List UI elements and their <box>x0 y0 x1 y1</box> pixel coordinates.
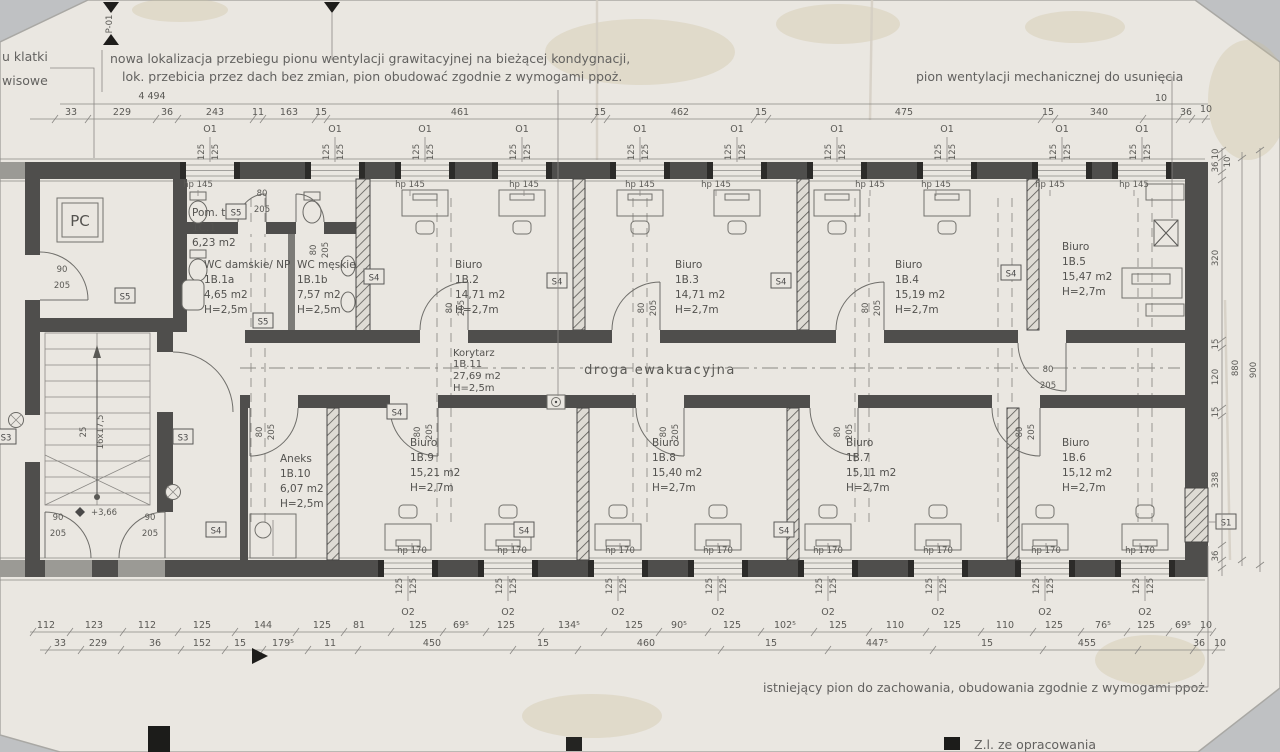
svg-text:11: 11 <box>252 107 264 118</box>
svg-text:69⁵: 69⁵ <box>453 620 469 631</box>
svg-text:81: 81 <box>353 620 365 631</box>
svg-text:320: 320 <box>1211 250 1221 266</box>
svg-text:36: 36 <box>1193 638 1205 649</box>
svg-text:10: 10 <box>1214 638 1226 649</box>
overall-dim: 4 494 <box>138 91 165 102</box>
room-label-korytarz: Korytarz 1B.11 27,69 m2 H=2,5m <box>453 348 501 394</box>
svg-text:102⁵: 102⁵ <box>774 620 796 631</box>
svg-text:10: 10 <box>1200 620 1212 631</box>
svg-text:H=2,7m: H=2,7m <box>410 482 454 494</box>
svg-text:H=2,5m: H=2,5m <box>204 304 248 316</box>
svg-text:15: 15 <box>537 638 549 649</box>
svg-text:Biuro: Biuro <box>895 259 922 271</box>
floor-plan-svg: O1 125 125 O2 125 125 hp 145 hp 170 S4 <box>0 0 1280 752</box>
svg-text:179⁵: 179⁵ <box>272 638 294 649</box>
svg-text:10: 10 <box>1211 149 1221 160</box>
svg-text:Biuro: Biuro <box>1062 241 1089 253</box>
svg-text:WC damskie/ NP: WC damskie/ NP <box>204 259 290 271</box>
svg-text:Korytarz: Korytarz <box>453 348 495 359</box>
svg-text:36: 36 <box>149 638 161 649</box>
evacuation-route-label: droga ewakuacyjna <box>584 363 736 378</box>
svg-text:15,40 m2: 15,40 m2 <box>652 467 702 479</box>
level-value: +3,66 <box>91 508 117 518</box>
svg-text:900: 900 <box>1249 362 1259 378</box>
svg-text:4,65 m2: 4,65 m2 <box>204 289 248 301</box>
svg-text:1B.1b: 1B.1b <box>297 274 328 286</box>
right-note: pion wentylacji mechanicznej do usunięci… <box>916 69 1183 84</box>
svg-text:H=2,7m: H=2,7m <box>846 482 890 494</box>
svg-text:125: 125 <box>409 620 427 631</box>
svg-text:1B.1a: 1B.1a <box>204 274 234 286</box>
svg-text:36: 36 <box>1211 162 1221 173</box>
svg-text:125: 125 <box>1137 620 1155 631</box>
svg-text:134⁵: 134⁵ <box>558 620 580 631</box>
existing-vent-shaft <box>1185 488 1208 542</box>
svg-text:229: 229 <box>113 107 131 118</box>
corner-note-line1: u klatki <box>2 49 48 64</box>
svg-text:33: 33 <box>54 638 66 649</box>
svg-text:125: 125 <box>625 620 643 631</box>
sink-icon <box>182 280 204 310</box>
svg-text:90⁵: 90⁵ <box>671 620 687 631</box>
svg-text:125: 125 <box>829 620 847 631</box>
svg-text:15: 15 <box>1211 407 1221 418</box>
svg-text:338: 338 <box>1211 472 1221 488</box>
svg-text:120: 120 <box>1211 369 1221 385</box>
svg-text:6,07 m2: 6,07 m2 <box>280 483 324 495</box>
svg-text:10: 10 <box>1200 104 1212 115</box>
svg-text:110: 110 <box>996 620 1014 631</box>
svg-text:1C.1: 1C.1 <box>192 222 216 234</box>
svg-text:6,23 m2: 6,23 m2 <box>192 237 236 249</box>
svg-text:125: 125 <box>497 620 515 631</box>
svg-text:144: 144 <box>254 620 272 631</box>
svg-text:15: 15 <box>234 638 246 649</box>
svg-text:1B.10: 1B.10 <box>280 468 311 480</box>
urinal-icon <box>341 292 355 312</box>
svg-text:Aneks: Aneks <box>280 453 312 465</box>
svg-text:33: 33 <box>65 107 77 118</box>
svg-text:152: 152 <box>193 638 211 649</box>
mech-vent-to-remove-symbol <box>1154 220 1178 246</box>
svg-text:461: 461 <box>451 107 469 118</box>
svg-text:P-01: P-01 <box>105 15 115 34</box>
svg-text:36: 36 <box>1180 107 1192 118</box>
svg-text:15: 15 <box>755 107 767 118</box>
svg-text:H=2,5m: H=2,5m <box>297 304 341 316</box>
legend-black-square <box>566 737 582 751</box>
svg-text:1B.4: 1B.4 <box>895 274 919 286</box>
svg-text:15: 15 <box>315 107 327 118</box>
svg-text:1B.9: 1B.9 <box>410 452 434 464</box>
svg-text:14,71 m2: 14,71 m2 <box>675 289 725 301</box>
svg-text:125: 125 <box>1045 620 1063 631</box>
svg-text:125: 125 <box>193 620 211 631</box>
svg-text:76⁵: 76⁵ <box>1095 620 1111 631</box>
svg-text:H=2,5m: H=2,5m <box>453 383 495 394</box>
pc-label: PC <box>70 212 90 230</box>
svg-text:H=2,7m: H=2,7m <box>895 304 939 316</box>
svg-text:125: 125 <box>723 620 741 631</box>
svg-text:14,71 m2: 14,71 m2 <box>455 289 505 301</box>
svg-text:11: 11 <box>324 638 336 649</box>
svg-text:15,47 m2: 15,47 m2 <box>1062 271 1112 283</box>
svg-text:1B.5: 1B.5 <box>1062 256 1086 268</box>
svg-text:H=2,5m: H=2,5m <box>280 498 324 510</box>
svg-text:27,69 m2: 27,69 m2 <box>453 371 501 382</box>
svg-text:110: 110 <box>886 620 904 631</box>
svg-text:10: 10 <box>1223 157 1233 168</box>
svg-text:1B.8: 1B.8 <box>652 452 676 464</box>
svg-text:H=2,7m: H=2,7m <box>675 304 719 316</box>
svg-text:462: 462 <box>671 107 689 118</box>
svg-text:Biuro: Biuro <box>455 259 482 271</box>
top-note-line2: lok. przebicia przez dach bez zmian, pio… <box>122 69 622 84</box>
footer-caption: Z.l. ze opracowania <box>974 737 1096 752</box>
corner-note-line2: wisowe <box>2 73 48 88</box>
svg-text:H=2,7m: H=2,7m <box>652 482 696 494</box>
svg-text:450: 450 <box>423 638 441 649</box>
svg-text:15: 15 <box>981 638 993 649</box>
svg-text:WC męskie: WC męskie <box>297 259 356 271</box>
svg-text:10: 10 <box>1155 93 1167 104</box>
vent-grav-symbol <box>166 485 181 500</box>
svg-text:15,19 m2: 15,19 m2 <box>895 289 945 301</box>
svg-text:15,11 m2: 15,11 m2 <box>846 467 896 479</box>
svg-text:460: 460 <box>637 638 655 649</box>
svg-text:163: 163 <box>280 107 298 118</box>
svg-text:15: 15 <box>1211 339 1221 350</box>
svg-text:880: 880 <box>1231 360 1241 376</box>
svg-text:36: 36 <box>161 107 173 118</box>
svg-text:Biuro: Biuro <box>675 259 702 271</box>
svg-text:123: 123 <box>85 620 103 631</box>
svg-text:H=2,7m: H=2,7m <box>1062 286 1106 298</box>
top-note-line1: nowa lokalizacja przebiegu pionu wentyla… <box>110 51 630 66</box>
svg-text:1B.11: 1B.11 <box>453 359 482 370</box>
legend-black-box <box>148 726 170 752</box>
svg-text:455: 455 <box>1078 638 1096 649</box>
vent-grav-symbol <box>9 413 24 428</box>
svg-text:125: 125 <box>943 620 961 631</box>
svg-text:36: 36 <box>1211 551 1221 562</box>
svg-text:112: 112 <box>138 620 156 631</box>
stair-steps-dim: 16x17,5 <box>96 415 106 450</box>
svg-text:69⁵: 69⁵ <box>1175 620 1191 631</box>
svg-text:1B.2: 1B.2 <box>455 274 479 286</box>
svg-text:15: 15 <box>765 638 777 649</box>
svg-text:229: 229 <box>89 638 107 649</box>
svg-text:1B.3: 1B.3 <box>675 274 699 286</box>
svg-text:15: 15 <box>1042 107 1054 118</box>
legend-symbol <box>944 737 960 750</box>
photographed-floor-plan: O1 125 125 O2 125 125 hp 145 hp 170 S4 <box>0 0 1280 752</box>
stair-tread-dim: 25 <box>79 427 89 438</box>
svg-text:112: 112 <box>37 620 55 631</box>
svg-text:243: 243 <box>206 107 224 118</box>
new-vent-location-symbol <box>547 395 565 409</box>
svg-text:125: 125 <box>313 620 331 631</box>
svg-text:7,57 m2: 7,57 m2 <box>297 289 341 301</box>
svg-text:15,21 m2: 15,21 m2 <box>410 467 460 479</box>
bottom-note: istniejący pion do zachowania, obudowani… <box>763 680 1209 695</box>
svg-text:475: 475 <box>895 107 913 118</box>
svg-text:1B.7: 1B.7 <box>846 452 870 464</box>
svg-text:Biuro: Biuro <box>1062 437 1089 449</box>
svg-text:H=2,7m: H=2,7m <box>1062 482 1106 494</box>
svg-text:340: 340 <box>1090 107 1108 118</box>
svg-text:1B.6: 1B.6 <box>1062 452 1086 464</box>
svg-text:15: 15 <box>594 107 606 118</box>
svg-text:15,12 m2: 15,12 m2 <box>1062 467 1112 479</box>
svg-text:447⁵: 447⁵ <box>866 638 888 649</box>
